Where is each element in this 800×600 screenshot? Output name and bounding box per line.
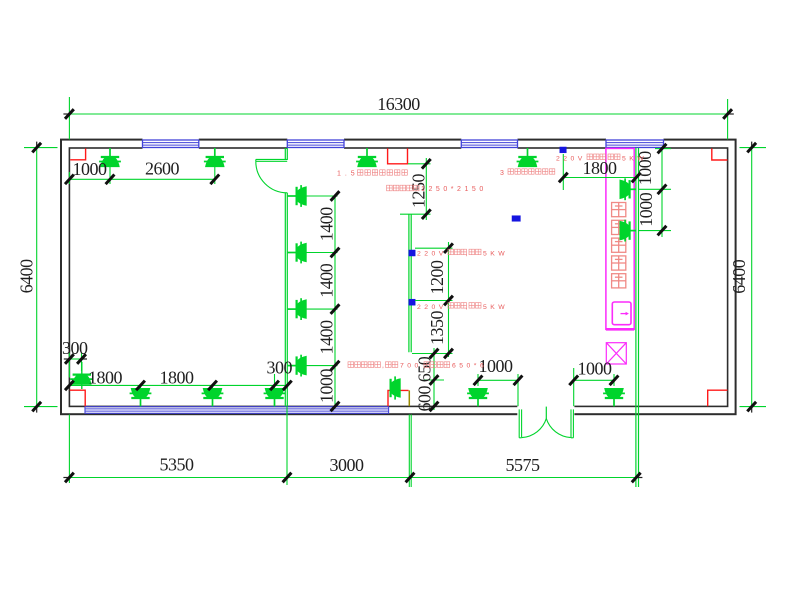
svg-text:7 0 0: 7 0 0 [400, 362, 419, 369]
svg-text:2 2 0 V: 2 2 0 V [417, 251, 444, 258]
svg-text:3000: 3000 [330, 455, 365, 475]
svg-text:1800: 1800 [88, 367, 123, 387]
svg-text:1 2 5 0 * 2 1 5 0: 1 2 5 0 * 2 1 5 0 [421, 186, 484, 193]
svg-text:1000: 1000 [73, 159, 108, 179]
svg-text:5575: 5575 [506, 455, 541, 475]
svg-text:1000: 1000 [317, 369, 337, 404]
svg-text:1350: 1350 [427, 311, 447, 346]
svg-text:600: 600 [415, 386, 435, 412]
svg-text:2600: 2600 [145, 159, 180, 179]
svg-text:5 K W: 5 K W [483, 251, 506, 258]
svg-text:1800: 1800 [160, 367, 195, 387]
svg-text:5 K W: 5 K W [622, 155, 645, 162]
svg-text:1800: 1800 [583, 158, 618, 178]
svg-text:3: 3 [500, 170, 504, 177]
svg-text:1400: 1400 [317, 320, 337, 355]
svg-text:2 2 0 V: 2 2 0 V [556, 155, 583, 162]
svg-text:1 . 5: 1 . 5 [337, 170, 356, 177]
svg-text:,: , [466, 251, 468, 258]
svg-text:16300: 16300 [377, 94, 420, 114]
svg-text:6400: 6400 [729, 259, 749, 294]
svg-text:,: , [382, 363, 384, 370]
svg-text:1400: 1400 [317, 207, 337, 242]
svg-text:1000: 1000 [578, 358, 613, 378]
svg-text:5 K W: 5 K W [483, 304, 506, 311]
svg-text:1200: 1200 [427, 260, 447, 295]
svg-text:6400: 6400 [17, 259, 37, 294]
svg-text:6 5 0 * 6: 6 5 0 * 6 [452, 362, 485, 369]
svg-text:5350: 5350 [160, 455, 195, 475]
svg-text:300: 300 [62, 338, 88, 358]
svg-text:1400: 1400 [317, 263, 337, 298]
svg-text:2 2 0 V: 2 2 0 V [417, 304, 444, 311]
svg-text:1000: 1000 [636, 192, 656, 227]
svg-text:,: , [466, 304, 468, 311]
svg-text:300: 300 [267, 357, 293, 377]
svg-text:,: , [605, 155, 607, 162]
